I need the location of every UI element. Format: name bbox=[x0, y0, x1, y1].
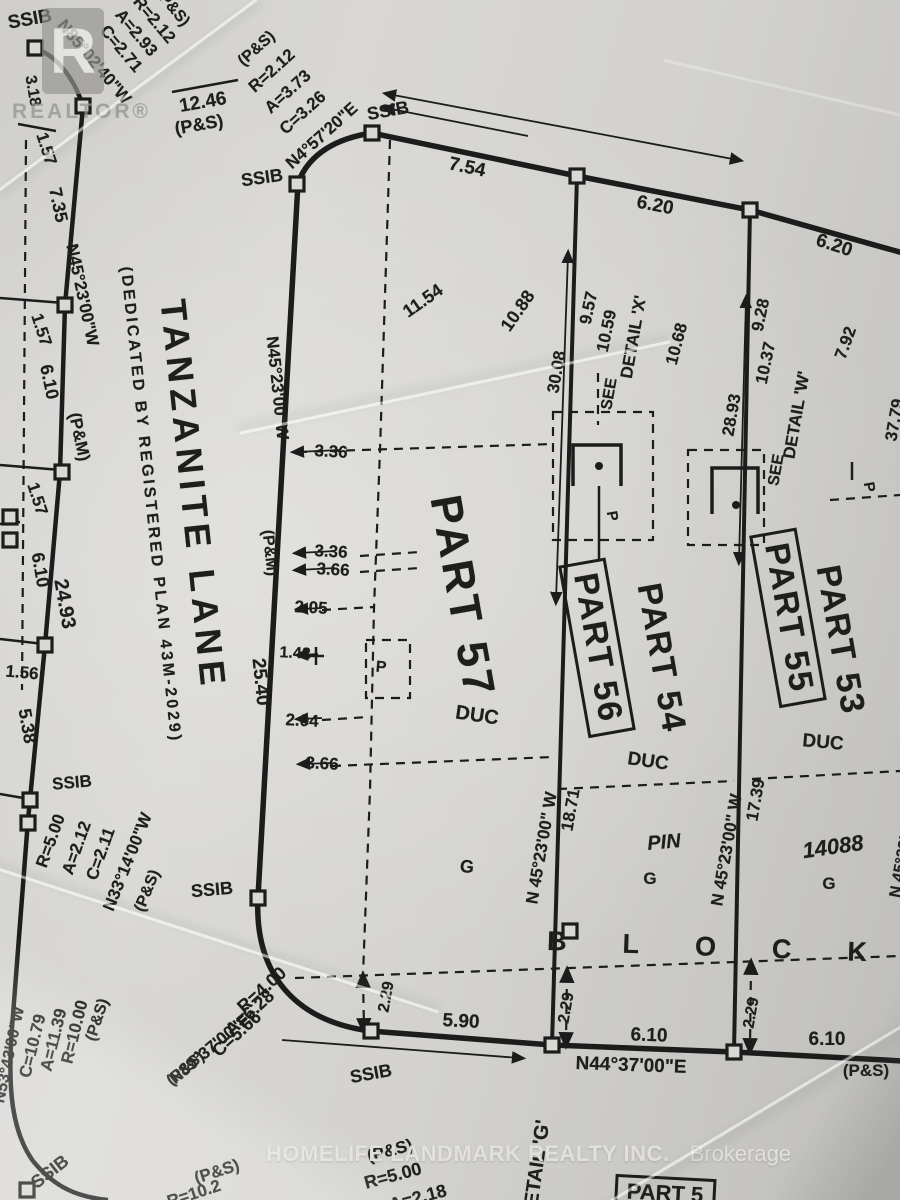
map-label: SSIB bbox=[51, 771, 92, 794]
map-label: 30.08 bbox=[543, 349, 570, 394]
map-label: (P&S) bbox=[843, 1061, 889, 1081]
map-label: 1.56 bbox=[5, 662, 40, 685]
map-label: 2.05 bbox=[294, 597, 328, 619]
map-label: DUC bbox=[454, 702, 500, 731]
map-label: PIN bbox=[646, 830, 681, 856]
map-label: SSIB bbox=[27, 1151, 73, 1193]
map-label: PART 56 bbox=[558, 558, 636, 739]
map-label: DETAIL 'W' bbox=[779, 370, 814, 461]
map-label: SSIB bbox=[348, 1060, 393, 1088]
map-label: BLOCK bbox=[547, 926, 900, 970]
map-label: SSIB bbox=[240, 165, 285, 192]
map-label: P bbox=[860, 481, 878, 494]
map-label: 5.38 bbox=[14, 707, 41, 745]
map-label: 6.10 bbox=[809, 1029, 846, 1051]
map-label: 37.79 bbox=[881, 397, 900, 442]
map-label: 24.93 bbox=[48, 577, 79, 630]
map-label: (P&M) bbox=[258, 529, 281, 577]
map-label: 1.42 bbox=[279, 644, 311, 664]
map-label: SSIB bbox=[365, 97, 410, 125]
map-label: N45°23'00"W bbox=[262, 335, 293, 440]
map-label: 14088 bbox=[801, 830, 865, 864]
map-label: 3.66 bbox=[305, 753, 339, 775]
map-label: (P&S) bbox=[131, 867, 164, 914]
map-label: SSIB bbox=[190, 878, 234, 903]
map-label: P bbox=[603, 510, 621, 523]
map-label: 2.29 bbox=[555, 991, 578, 1025]
map-label: 17.39 bbox=[742, 777, 769, 822]
map-label: 1.57 bbox=[26, 311, 55, 349]
map-label: DUC bbox=[626, 748, 670, 776]
map-label: DETAIL 'G' bbox=[519, 1118, 556, 1200]
map-label: 2.29 bbox=[740, 996, 763, 1030]
map-label: PART 57 bbox=[420, 491, 505, 702]
map-label: PART 55 bbox=[749, 528, 827, 709]
map-label: 6.10 bbox=[630, 1024, 668, 1047]
map-label: G bbox=[459, 856, 475, 878]
map-label: N 45°23'00" W bbox=[707, 792, 746, 907]
map-label: N 45°23'00" W bbox=[887, 791, 900, 899]
survey-text-labels: SSIBN85°02'40"WC=2.71A=2.93R=2.12(P&S)3.… bbox=[0, 0, 900, 1200]
map-label: SEE bbox=[765, 453, 788, 488]
map-label: SEE bbox=[598, 377, 621, 412]
map-label: 7.92 bbox=[831, 324, 861, 362]
map-label: (P&M) bbox=[64, 411, 94, 463]
map-label: 10.68 bbox=[662, 321, 692, 367]
map-label: 7.54 bbox=[447, 153, 488, 182]
map-label: 5.90 bbox=[442, 1010, 480, 1034]
map-label: N 45°23'00" W bbox=[522, 790, 561, 905]
map-label: 6.10 bbox=[35, 363, 63, 402]
map-label: PART 54 bbox=[629, 580, 694, 736]
map-label: DUC bbox=[802, 730, 845, 756]
map-label: 3.66 bbox=[316, 559, 350, 581]
map-label: G bbox=[822, 874, 835, 894]
map-label: R=10.2 bbox=[165, 1176, 224, 1200]
survey-plan-photo: SSIBN85°02'40"WC=2.71A=2.93R=2.12(P&S)3.… bbox=[0, 0, 900, 1200]
map-label: P bbox=[375, 659, 387, 678]
map-label: 1.57 bbox=[22, 480, 51, 518]
map-label: 3.36 bbox=[314, 441, 348, 463]
map-label: 2.04 bbox=[285, 710, 319, 732]
map-label: 10.37 bbox=[752, 340, 780, 386]
map-label: 25.40 bbox=[247, 657, 274, 707]
map-label: 11.54 bbox=[399, 280, 447, 322]
map-label: DETAIL 'X' bbox=[617, 294, 651, 380]
map-label: 7.35 bbox=[44, 186, 72, 225]
map-label: 9.28 bbox=[748, 297, 774, 334]
map-label: N45°23'00"W bbox=[61, 242, 102, 348]
map-label: 1.57 bbox=[31, 130, 60, 168]
map-label: G bbox=[643, 869, 656, 889]
map-label: PART 5 bbox=[614, 1174, 716, 1200]
map-label: 6.20 bbox=[635, 192, 676, 221]
map-label: 28.93 bbox=[718, 392, 745, 437]
map-label: 10.88 bbox=[496, 287, 539, 336]
map-label: N44°37'00"E bbox=[575, 1053, 687, 1079]
map-label: 2.29 bbox=[375, 980, 398, 1014]
map-label: 6.20 bbox=[813, 230, 855, 262]
map-label: 3.18 bbox=[20, 74, 43, 108]
map-label: SSIB bbox=[6, 5, 54, 34]
